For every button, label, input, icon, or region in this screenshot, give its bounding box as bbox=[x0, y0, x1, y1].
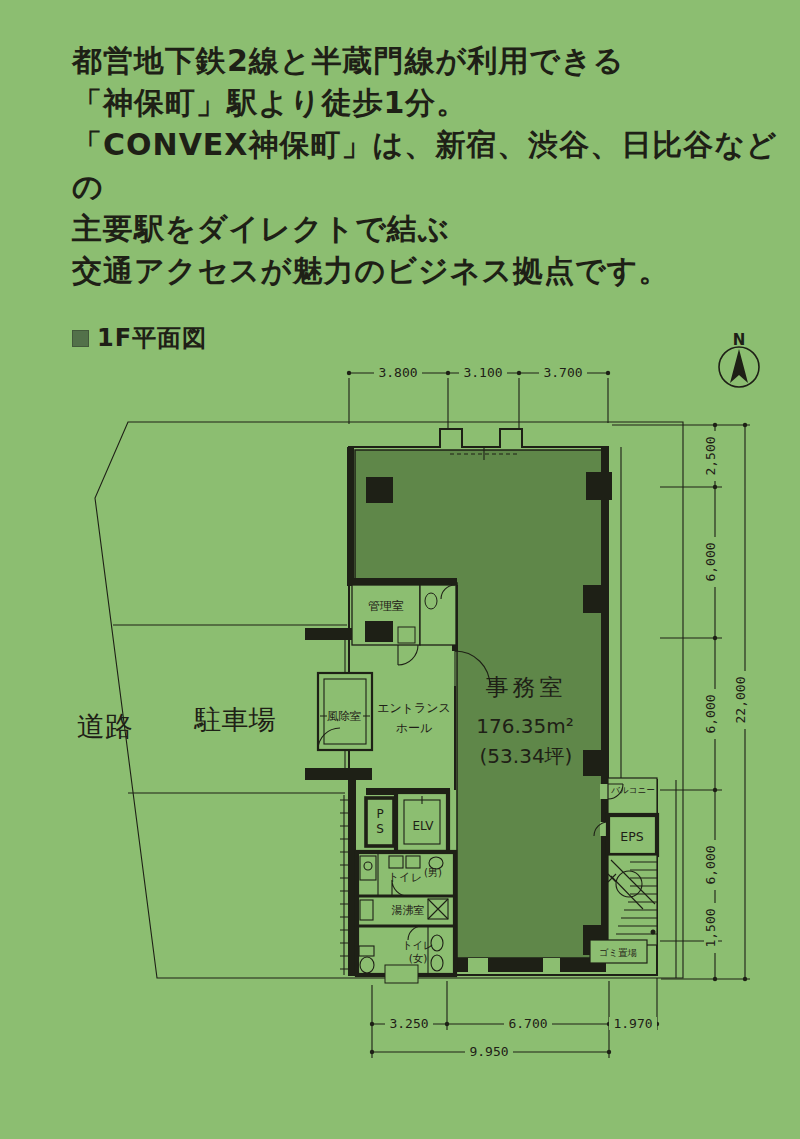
entry-step bbox=[385, 965, 418, 983]
label-toilet-men-tag: (男) bbox=[424, 867, 442, 878]
dim-bottom-2: 6.700 bbox=[504, 1016, 552, 1031]
dim-bottom-1: 3.250 bbox=[385, 1016, 433, 1031]
stairs bbox=[608, 855, 657, 945]
svg-text:2,500: 2,500 bbox=[703, 436, 718, 475]
intro-text-block: 都営地下鉄2線と半蔵門線が利用できる 「神保町」駅より徒歩1分。 「CONVEX… bbox=[72, 40, 800, 292]
label-toilet-men: トイレ bbox=[388, 871, 422, 884]
svg-text:6,000: 6,000 bbox=[703, 694, 718, 733]
svg-text:3.250: 3.250 bbox=[389, 1016, 428, 1031]
label-road: 道路 bbox=[77, 710, 133, 743]
dim-right-3: 6,000 bbox=[703, 689, 718, 739]
dim-right-1: 2,500 bbox=[703, 431, 718, 481]
svg-text:3.800: 3.800 bbox=[378, 365, 417, 380]
label-manager-room: 管理室 bbox=[368, 599, 404, 613]
svg-text:6,000: 6,000 bbox=[703, 542, 718, 581]
dim-top-1: 3.800 bbox=[374, 365, 422, 380]
svg-text:3.700: 3.700 bbox=[543, 365, 582, 380]
dim-right-total: 22,000 bbox=[733, 671, 748, 729]
svg-text:3.100: 3.100 bbox=[463, 365, 502, 380]
room-balcony bbox=[608, 778, 657, 815]
dim-bottom-3: 1.970 bbox=[609, 1016, 657, 1031]
north-compass-icon: N bbox=[719, 331, 759, 387]
label-office: 事務室 bbox=[486, 674, 567, 700]
room-wc bbox=[420, 585, 456, 645]
label-toilet-women: トイレ bbox=[402, 939, 434, 951]
label-ps-p: P bbox=[376, 807, 383, 821]
west-fence bbox=[340, 795, 348, 975]
intro-line-2: 「神保町」駅より徒歩1分。 bbox=[72, 82, 800, 124]
dim-right-4: 6,000 bbox=[703, 840, 718, 890]
room-manager bbox=[352, 585, 420, 665]
intro-line-1: 都営地下鉄2線と半蔵門線が利用できる bbox=[72, 40, 800, 82]
label-garbage: ゴミ置場 bbox=[599, 947, 637, 958]
svg-text:22,000: 22,000 bbox=[733, 677, 748, 724]
svg-text:1,500: 1,500 bbox=[703, 908, 718, 947]
room-windbreak bbox=[318, 640, 372, 768]
label-entrance-hall-1: エントランス bbox=[377, 701, 451, 715]
label-office-tsubo: (53.34坪) bbox=[480, 744, 573, 768]
dim-top-2: 3.100 bbox=[459, 365, 507, 380]
intro-line-3: 「CONVEX神保町」は、新宿、渋谷、日比谷などの bbox=[72, 124, 800, 208]
dim-right-2: 6,000 bbox=[703, 537, 718, 587]
label-elevator: ELV bbox=[412, 819, 434, 833]
label-ps-s: S bbox=[376, 822, 384, 836]
intro-line-5: 交通アクセスが魅力のビジネス拠点です。 bbox=[72, 250, 800, 292]
label-kitchenette: 湯沸室 bbox=[392, 904, 425, 917]
label-office-area: 176.35m² bbox=[476, 714, 573, 738]
dim-bottom-total: 9.950 bbox=[465, 1044, 513, 1059]
dim-top-3: 3.700 bbox=[539, 365, 587, 380]
svg-text:6,000: 6,000 bbox=[703, 845, 718, 884]
floor-plan: 道路 駐車場 管理室 風除室 エントランス ホール 事務室 176.35m² (… bbox=[40, 318, 800, 1090]
svg-text:6.700: 6.700 bbox=[508, 1016, 547, 1031]
label-toilet-women-tag: (女) bbox=[409, 952, 428, 964]
intro-line-4: 主要駅をダイレクトで結ぶ bbox=[72, 208, 800, 250]
svg-text:9.950: 9.950 bbox=[469, 1044, 508, 1059]
label-parking: 駐車場 bbox=[194, 704, 276, 735]
dim-right-5: 1,500 bbox=[703, 903, 718, 953]
label-eps: EPS bbox=[620, 829, 643, 844]
label-windbreak-room: 風除室 bbox=[327, 709, 362, 723]
svg-text:1.970: 1.970 bbox=[613, 1016, 652, 1031]
label-entrance-hall-2: ホール bbox=[396, 721, 433, 735]
label-balcony: バルコニー bbox=[610, 785, 654, 795]
